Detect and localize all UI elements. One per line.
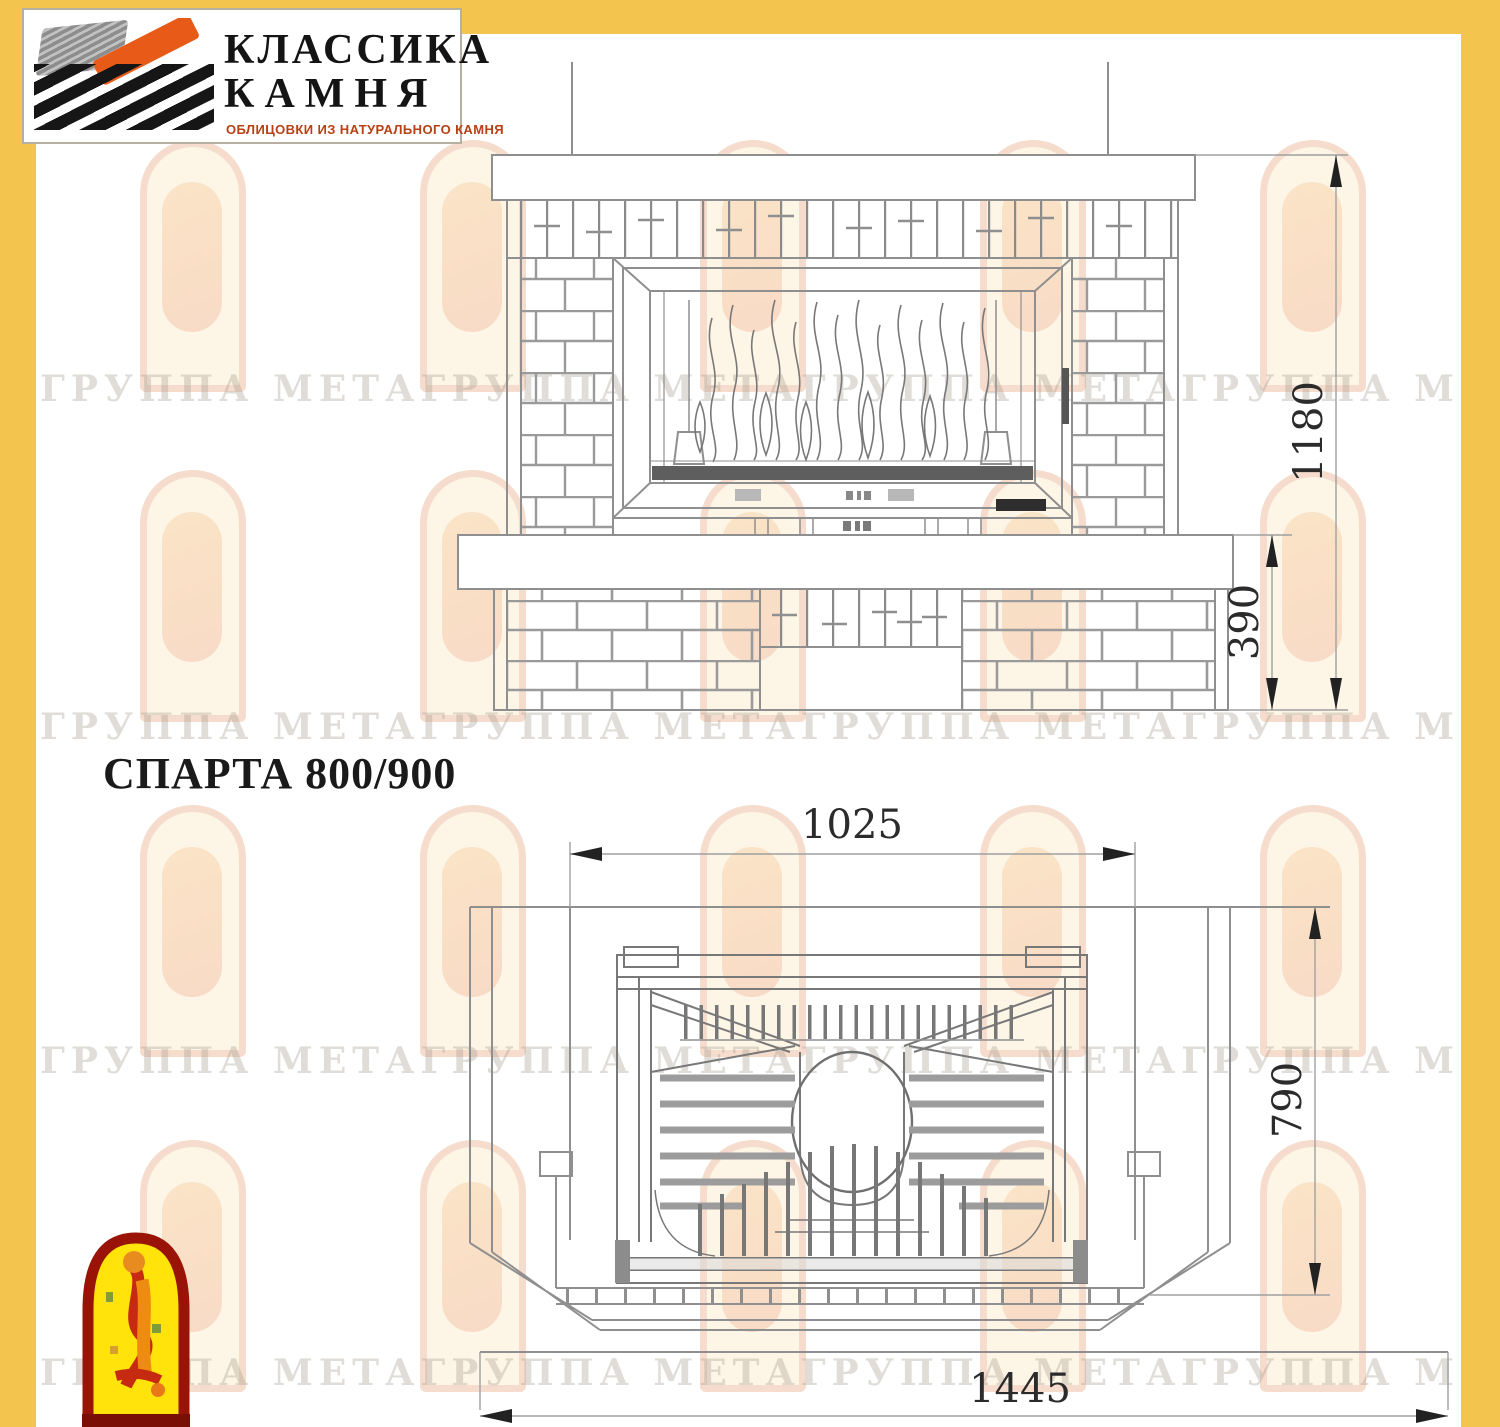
front-elevation-drawing: 1180 390 [440, 50, 1360, 730]
flame-grille [695, 300, 989, 462]
brand-name-line2: КАМНЯ [224, 70, 437, 118]
page-title: СПАРТА 800/900 [103, 748, 456, 799]
hearth-shelf [458, 535, 1233, 589]
soldier-course-band [507, 200, 1178, 258]
door-handle [1062, 368, 1069, 424]
watermark-arch-icon [140, 805, 246, 1057]
base-pier-left [507, 589, 760, 710]
wood-niche [760, 647, 962, 710]
dim-depth: 790 [1265, 1062, 1311, 1138]
dim-insert-width: 1025 [801, 802, 903, 848]
dim-total-height: 1180 [1286, 381, 1332, 483]
control-lever [996, 499, 1046, 511]
frame-right [1461, 0, 1500, 1427]
grate-front-strip [652, 466, 1033, 480]
watermark-arch-icon [140, 470, 246, 722]
catalog-page: ГРУППА МЕТАГРУППА МЕТАГРУППА МЕТАГРУППА … [0, 0, 1500, 1427]
plan-view-drawing: 1025 790 1445 [440, 780, 1500, 1427]
brand-tagline: ОБЛИЦОВКИ ИЗ НАТУРАЛЬНОГО КАМНЯ [226, 122, 504, 137]
plan-bottom-grate [700, 1144, 986, 1256]
watermark-arch-icon [140, 140, 246, 392]
logo-black-strokes-icon [34, 64, 214, 130]
dim-front-width: 1445 [969, 1366, 1071, 1412]
brick-column-left [521, 258, 613, 535]
brick-column-right [1072, 258, 1164, 535]
base-pier-right [962, 589, 1215, 710]
company-logo: КЛАССИКА КАМНЯ ОБЛИЦОВКИ ИЗ НАТУРАЛЬНОГО… [22, 8, 462, 144]
meta-arch-logo [82, 1228, 190, 1427]
brand-name-line1: КЛАССИКА [224, 26, 492, 74]
firebox-glass [650, 291, 1035, 483]
mantel-shelf [492, 155, 1195, 200]
dim-base-height: 390 [1222, 584, 1268, 660]
company-logo-icon [34, 18, 214, 132]
frame-left [0, 0, 36, 1427]
